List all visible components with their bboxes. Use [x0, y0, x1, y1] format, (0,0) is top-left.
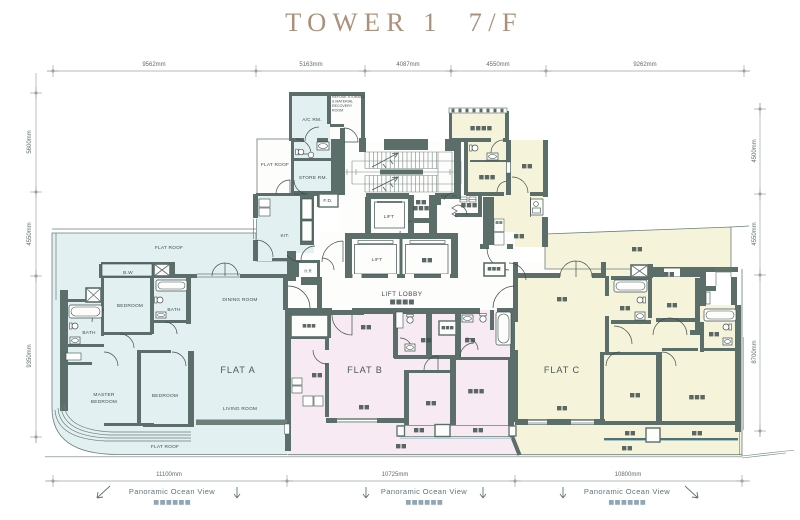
svg-text:11100mm: 11100mm — [156, 472, 182, 478]
svg-text:4087mm: 4087mm — [396, 62, 419, 68]
svg-text:BEDROOM: BEDROOM — [152, 393, 178, 399]
svg-text:FLAT ROOF: FLAT ROOF — [155, 245, 183, 251]
svg-text:B.W: B.W — [123, 270, 133, 276]
svg-text:4550mm: 4550mm — [752, 222, 758, 245]
svg-text:FLAT ROOF: FLAT ROOF — [261, 162, 289, 168]
svg-text:Panoramic Ocean View: Panoramic Ocean View — [381, 487, 467, 496]
svg-text:REFUSE STORAGE: REFUSE STORAGE — [332, 95, 366, 99]
svg-text:9562mm: 9562mm — [142, 62, 165, 68]
svg-text:STORE RM.: STORE RM. — [299, 175, 327, 181]
svg-text:BEDROOM: BEDROOM — [91, 399, 117, 405]
svg-text:8700mm: 8700mm — [752, 340, 758, 363]
svg-text:& MATERIAL: & MATERIAL — [332, 100, 353, 104]
svg-text:BATH: BATH — [82, 330, 96, 336]
svg-text:4550mm: 4550mm — [486, 62, 509, 68]
svg-text:RECOVERY: RECOVERY — [332, 104, 353, 108]
svg-text:Panoramic Ocean View: Panoramic Ocean View — [584, 487, 670, 496]
svg-text:FLAT A: FLAT A — [220, 365, 255, 375]
svg-text:10725mm: 10725mm — [382, 472, 409, 478]
svg-text:DINING ROOM: DINING ROOM — [222, 297, 257, 303]
svg-text:LIFT: LIFT — [372, 257, 383, 263]
svg-text:BATH: BATH — [167, 307, 181, 313]
svg-text:MASTER: MASTER — [93, 392, 115, 398]
svg-text:FLAT B: FLAT B — [347, 365, 383, 375]
svg-text:F.D.: F.D. — [323, 198, 332, 204]
svg-text:5600mm: 5600mm — [27, 130, 33, 153]
svg-text:TOWER 1 7/F: TOWER 1 7/F — [285, 7, 523, 37]
svg-text:BEDROOM: BEDROOM — [117, 303, 143, 309]
svg-text:10800mm: 10800mm — [615, 472, 642, 478]
svg-text:LIFT LOBBY: LIFT LOBBY — [381, 291, 422, 298]
svg-text:H.R: H.R — [304, 269, 311, 274]
svg-text:5163mm: 5163mm — [299, 62, 322, 68]
svg-text:A/C RM.: A/C RM. — [302, 117, 322, 123]
svg-text:FLAT C: FLAT C — [544, 365, 580, 375]
svg-text:9262mm: 9262mm — [633, 62, 656, 68]
svg-text:ROOM: ROOM — [332, 109, 343, 113]
svg-text:4550mm: 4550mm — [27, 222, 33, 245]
svg-text:9350mm: 9350mm — [27, 344, 33, 367]
svg-text:4500mm: 4500mm — [752, 139, 758, 162]
svg-text:LIVING ROOM: LIVING ROOM — [223, 406, 257, 412]
svg-text:Panoramic Ocean View: Panoramic Ocean View — [129, 487, 215, 496]
svg-text:FLAT ROOF: FLAT ROOF — [151, 444, 179, 450]
svg-text:KIT.: KIT. — [280, 233, 289, 239]
svg-text:LIFT: LIFT — [384, 214, 395, 220]
